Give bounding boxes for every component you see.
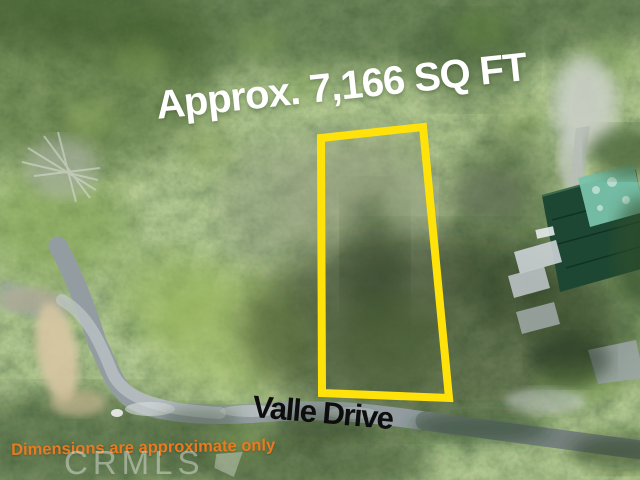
watermark: CRMLS xyxy=(64,446,241,479)
car-on-road xyxy=(111,409,123,417)
aerial-photo: Approx. 7,166 SQ FT Valle Drive Dimensio… xyxy=(0,0,640,480)
crmls-logo-icon xyxy=(213,448,242,477)
watermark-text: CRMLS xyxy=(64,446,205,479)
